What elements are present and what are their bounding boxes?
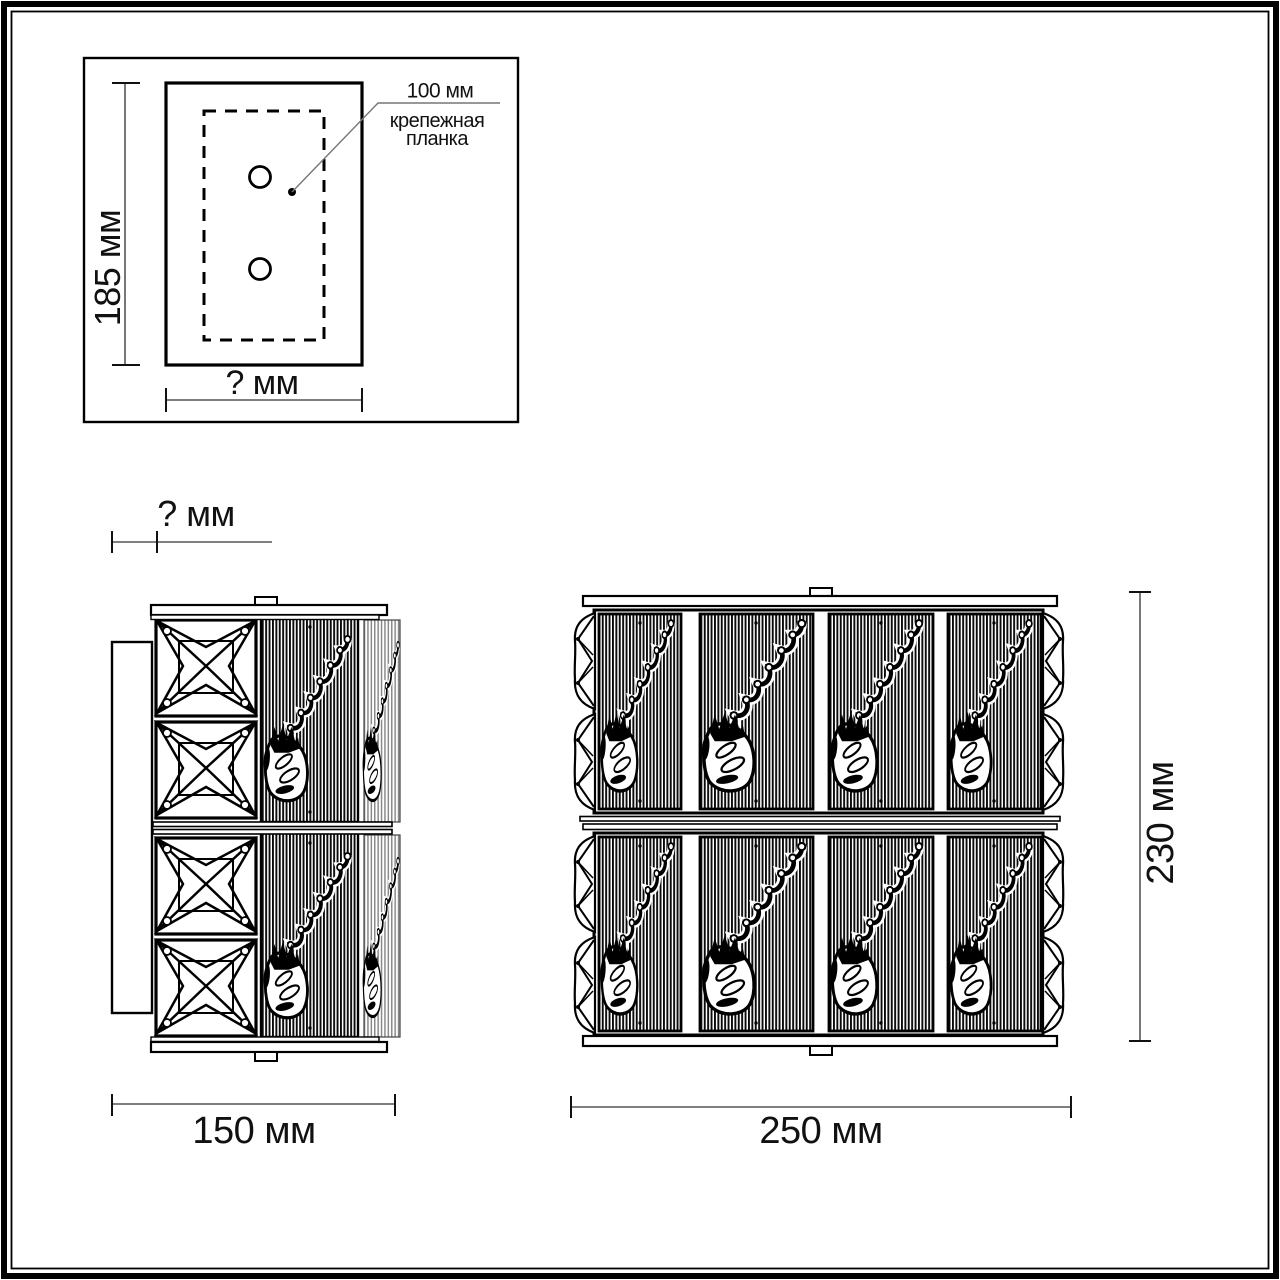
mount-width-label: ? мм: [225, 366, 298, 400]
drawing-linework: [0, 0, 1280, 1280]
front-view-drawing: [575, 588, 1064, 1055]
dimension-depth: [112, 531, 272, 553]
mount-height-label: 185 мм: [90, 210, 126, 327]
front-width-label: 250 мм: [759, 1112, 882, 1150]
technical-drawing-canvas: 185 мм ? мм 100 мм крепежная планка ? мм…: [0, 0, 1280, 1280]
screw-hole-top: [250, 167, 271, 188]
front-height-label: 230 мм: [1142, 761, 1180, 884]
side-view-drawing: [112, 597, 400, 1061]
top-plate: [583, 596, 1057, 606]
wall-bracket: [112, 642, 152, 1013]
top-plate: [151, 605, 387, 615]
backplate-outline: [166, 83, 362, 365]
depth-label: ? мм: [157, 496, 235, 532]
side-width-label: 150 мм: [192, 1112, 315, 1150]
mounting-strip-note-line2: планка: [406, 129, 468, 149]
bottom-plate: [583, 1036, 1057, 1046]
mounting-strip-size-label: 100 мм: [407, 81, 474, 102]
bottom-plate: [151, 1042, 387, 1052]
screw-hole-bottom: [250, 259, 271, 280]
